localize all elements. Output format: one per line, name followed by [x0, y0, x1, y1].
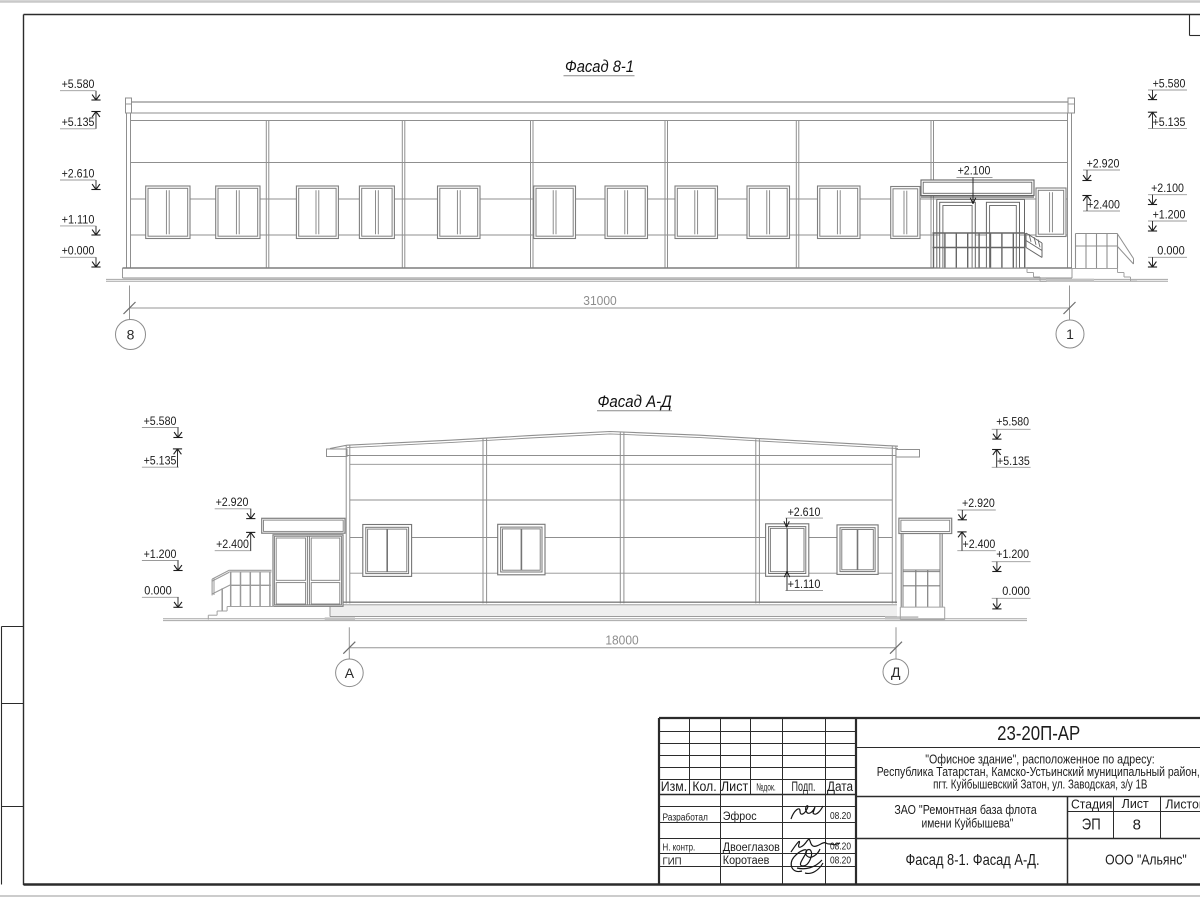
svg-text:08.20: 08.20	[830, 840, 851, 852]
svg-text:+1.200: +1.200	[1153, 207, 1186, 221]
svg-text:Фасад А-Д: Фасад А-Д	[598, 393, 673, 411]
svg-text:Кол.: Кол.	[692, 779, 716, 794]
svg-text:ГИП: ГИП	[663, 856, 682, 867]
svg-text:имени Куйбышева": имени Куйбышева"	[921, 816, 1013, 831]
svg-text:+2.920: +2.920	[216, 495, 249, 509]
svg-text:08.20: 08.20	[830, 810, 851, 822]
svg-text:+0.000: +0.000	[62, 244, 95, 258]
svg-text:+2.400: +2.400	[216, 537, 249, 551]
svg-text:+1.200: +1.200	[144, 547, 177, 561]
svg-text:+2.920: +2.920	[1087, 156, 1120, 170]
svg-text:1: 1	[1066, 326, 1074, 342]
svg-text:+2.400: +2.400	[1087, 197, 1120, 211]
svg-text:Фасад 8-1: Фасад 8-1	[565, 58, 634, 76]
svg-text:+2.610: +2.610	[788, 505, 821, 519]
svg-text:А: А	[345, 665, 355, 681]
svg-text:+2.100: +2.100	[1151, 181, 1184, 195]
svg-text:Н. контр.: Н. контр.	[663, 842, 696, 853]
svg-text:+1.110: +1.110	[62, 212, 95, 226]
svg-text:ООО "Альянс": ООО "Альянс"	[1105, 851, 1187, 868]
svg-text:23-20П-АР: 23-20П-АР	[997, 723, 1080, 745]
svg-text:08.20: 08.20	[830, 854, 851, 866]
svg-text:Разработал: Разработал	[663, 811, 709, 823]
svg-text:+2.920: +2.920	[962, 496, 995, 510]
svg-text:+2.400: +2.400	[963, 537, 996, 551]
svg-text:+5.135: +5.135	[62, 115, 95, 129]
svg-text:Лист: Лист	[721, 779, 748, 794]
svg-text:0.000: 0.000	[1002, 584, 1030, 598]
svg-text:0.000: 0.000	[144, 584, 172, 598]
svg-text:Стадия: Стадия	[1071, 797, 1112, 812]
svg-text:+2.610: +2.610	[62, 166, 95, 180]
svg-text:+5.135: +5.135	[144, 454, 177, 468]
svg-text:№док.: №док.	[756, 782, 775, 794]
svg-text:8: 8	[1133, 817, 1141, 834]
svg-text:Лист: Лист	[1122, 796, 1149, 811]
svg-text:Изм.: Изм.	[661, 779, 687, 794]
svg-text:+1.200: +1.200	[996, 547, 1029, 561]
svg-text:+5.580: +5.580	[1153, 76, 1186, 90]
svg-text:Двоеглазов: Двоеглазов	[723, 842, 780, 854]
svg-text:31000: 31000	[583, 293, 617, 308]
svg-text:+1.110: +1.110	[788, 577, 821, 591]
svg-text:18000: 18000	[605, 633, 638, 648]
svg-text:Листов: Листов	[1165, 797, 1200, 812]
svg-text:Эфрос: Эфрос	[723, 811, 757, 823]
svg-text:8: 8	[127, 327, 135, 343]
svg-text:+5.135: +5.135	[997, 454, 1030, 468]
svg-text:Дата: Дата	[827, 779, 853, 794]
svg-text:+5.580: +5.580	[996, 415, 1029, 429]
svg-text:+5.580: +5.580	[144, 414, 177, 428]
svg-text:ЭП: ЭП	[1082, 817, 1101, 834]
svg-text:пгт. Куйбышевский Затон, ул. З: пгт. Куйбышевский Затон, ул. Заводская, …	[933, 776, 1147, 791]
svg-text:0.000: 0.000	[1157, 244, 1185, 258]
svg-text:Коротаев: Коротаев	[723, 855, 770, 867]
svg-text:Фасад 8-1. Фасад А-Д.: Фасад 8-1. Фасад А-Д.	[905, 852, 1039, 869]
svg-text:Д: Д	[891, 664, 901, 680]
svg-text:+2.100: +2.100	[958, 164, 991, 178]
svg-text:Подп.: Подп.	[792, 779, 816, 794]
svg-text:+5.580: +5.580	[62, 77, 95, 91]
svg-text:+5.135: +5.135	[1153, 115, 1186, 129]
